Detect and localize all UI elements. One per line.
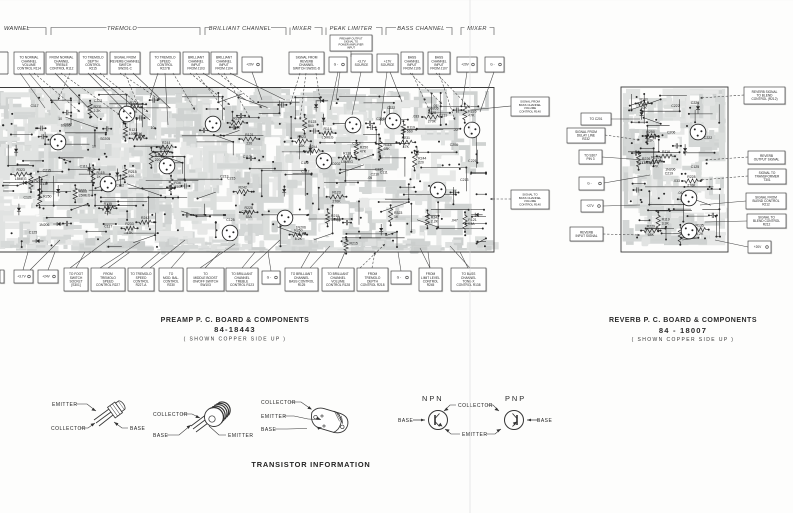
svg-text:C125: C125 [691,165,699,169]
svg-text:EMITTER: EMITTER [261,414,286,420]
svg-text:BASS CHANNEL: BASS CHANNEL [397,26,444,32]
svg-text:2.2K: 2.2K [431,219,439,223]
svg-text:TREMOLO: TREMOLO [107,26,137,32]
svg-text:C112: C112 [301,170,309,174]
svg-text:270K: 270K [332,199,341,203]
svg-text:2.2K: 2.2K [94,109,102,113]
svg-text:10: 10 [380,118,384,122]
svg-text:COLLECTOR: COLLECTOR [261,400,296,406]
svg-text:68K: 68K [384,147,391,151]
svg-text:+20V: +20V [461,63,469,67]
svg-text:C222: C222 [78,189,86,193]
svg-text:220: 220 [418,161,424,165]
svg-text:560: 560 [407,129,413,133]
svg-text:.05: .05 [367,176,372,180]
svg-text:FROM J103: FROM J103 [187,67,204,71]
svg-text:R227B: R227B [160,67,170,71]
svg-text:BASE: BASE [537,418,553,424]
svg-text:( SHOWN COPPER SIDE UP ): ( SHOWN COPPER SIDE UP ) [632,337,735,343]
svg-text:C112: C112 [116,184,124,188]
svg-text:BASE: BASE [130,426,146,432]
svg-text:R242: R242 [239,186,247,190]
svg-text:COLLECTOR: COLLECTOR [153,412,188,418]
svg-text:8.2K: 8.2K [696,232,704,236]
svg-text:53A: 53A [468,222,475,226]
svg-text:SOURCE: SOURCE [381,63,395,67]
svg-text:10: 10 [58,117,62,121]
svg-text:10: 10 [92,145,96,149]
svg-text:R125: R125 [298,283,306,287]
svg-text:G -: G - [490,63,494,67]
svg-text:L5MEG: L5MEG [79,194,91,198]
svg-text:C111: C111 [80,164,88,168]
svg-text:1K: 1K [97,175,102,179]
svg-text:BASE: BASE [153,433,169,439]
svg-text:WANNEL: WANNEL [4,26,30,32]
svg-text:G -: G - [267,276,271,280]
svg-text:560: 560 [308,124,314,128]
svg-text:10: 10 [151,126,155,130]
svg-text:47K: 47K [403,145,410,149]
svg-text:OUTPUT SIGNAL: OUTPUT SIGNAL [754,157,780,161]
svg-text:100: 100 [128,174,134,178]
svg-text:L5MEG: L5MEG [322,136,334,140]
svg-text:T301: T301 [763,178,770,182]
svg-text:R228: R228 [428,111,436,115]
svg-text:C117: C117 [637,161,645,165]
svg-text:53A: 53A [246,215,253,219]
svg-text:33K: 33K [299,144,306,148]
svg-text:47K: 47K [360,150,367,154]
svg-text:C206: C206 [241,210,249,214]
svg-text:R230: R230 [167,283,175,287]
svg-text:84 - 18007: 84 - 18007 [659,326,707,335]
svg-text:C117: C117 [31,104,39,108]
svg-text:R123: R123 [332,191,340,195]
svg-text:PREAMP P. C. BOARD & COMPO: PREAMP P. C. BOARD & COMPONENTS [161,317,310,324]
svg-text:1N206: 1N206 [39,223,49,227]
svg-text:CONTROL R123: CONTROL R123 [230,283,254,287]
svg-text:C117: C117 [104,225,112,229]
svg-text:CONTROL R140: CONTROL R140 [519,109,541,113]
svg-text:SWITCH SW201-D: SWITCH SW201-D [293,67,321,71]
svg-text:+20V: +20V [246,63,254,67]
svg-text:84-18443: 84-18443 [214,325,256,334]
svg-text:C125: C125 [226,218,234,222]
svg-text:C206: C206 [450,143,458,147]
svg-text:R245: R245 [427,283,435,287]
svg-text:3.3K: 3.3K [662,222,670,226]
svg-text:CONTROL R140: CONTROL R140 [519,202,541,206]
svg-text:C222: C222 [704,136,712,140]
svg-text:C226: C226 [375,168,383,172]
svg-text:TO C201: TO C201 [590,117,603,121]
svg-text:220: 220 [155,158,161,162]
svg-text:PIN 3: PIN 3 [587,157,595,161]
svg-text:( SHOWN COPPER SIDE UP ): ( SHOWN COPPER SIDE UP ) [184,337,287,343]
svg-text:C125: C125 [29,230,37,234]
svg-text:BRILLIANT CHANNEL: BRILLIANT CHANNEL [209,26,272,32]
svg-text:CONTROL R114: CONTROL R114 [17,67,41,71]
svg-text:+20V: +20V [754,245,762,249]
svg-text:220: 220 [246,142,252,146]
svg-text:C206: C206 [655,160,663,164]
svg-text:C222: C222 [387,106,395,110]
svg-text:R250: R250 [43,194,51,198]
svg-text:C222: C222 [671,104,679,108]
svg-text:+27V: +27V [586,204,594,208]
svg-text:NPN: NPN [422,394,444,403]
svg-text:R242: R242 [141,216,149,220]
svg-text:R323: R323 [17,168,25,172]
svg-text:47K: 47K [652,164,659,168]
svg-text:47K: 47K [126,231,133,235]
svg-text:FROM J104: FROM J104 [215,67,232,71]
svg-text:COLLECTOR: COLLECTOR [51,426,86,432]
svg-text:PNP: PNP [505,394,526,403]
svg-text:R215: R215 [350,241,358,245]
svg-text:C213: C213 [460,178,468,182]
svg-text:MIXER: MIXER [292,26,311,32]
svg-text:SOURCE: SOURCE [355,63,369,67]
svg-text:PEAK LIMITER: PEAK LIMITER [330,26,373,32]
svg-text:C206: C206 [667,131,675,135]
svg-text:CONTROL (R212): CONTROL (R212) [751,97,777,101]
svg-text:1K: 1K [394,215,399,219]
svg-text:R118: R118 [343,151,351,155]
svg-text:C121: C121 [24,196,32,200]
svg-text:R244: R244 [162,141,170,145]
svg-text:C226: C226 [468,159,476,163]
svg-text:R233: R233 [125,222,133,226]
svg-text:R227-A: R227-A [136,283,148,287]
svg-text:L5MEG: L5MEG [15,177,27,181]
svg-text:C219: C219 [665,171,673,175]
svg-text:33K: 33K [647,139,654,143]
svg-text:SW201-C: SW201-C [118,67,133,71]
svg-text:G -: G - [587,182,591,186]
svg-text:S0205: S0205 [100,137,110,141]
svg-text:COLLECTOR: COLLECTOR [458,403,493,409]
svg-text:CONTROL R218: CONTROL R218 [361,283,385,287]
svg-text:1MEG: 1MEG [331,218,341,222]
svg-text:8.2K: 8.2K [295,237,303,241]
svg-text:.047: .047 [451,219,458,223]
svg-text:68K: 68K [648,233,655,237]
svg-text:R228: R228 [687,175,695,179]
svg-text:R135: R135 [696,223,704,227]
svg-text:C112: C112 [40,182,48,186]
svg-text:FROM J106: FROM J106 [403,67,420,71]
svg-text:1N206: 1N206 [665,168,675,172]
svg-text:CONTROL R227: CONTROL R227 [96,283,120,287]
svg-text:REVERB P. C. BOARD & COMPO: REVERB P. C. BOARD & COMPONENTS [609,317,757,324]
svg-text:C219: C219 [352,142,360,146]
svg-text:BASE: BASE [398,418,414,424]
svg-text:CONTROL R128: CONTROL R128 [326,283,350,287]
svg-text:INPUT: INPUT [347,46,355,50]
svg-text:FROM J107: FROM J107 [430,67,447,71]
svg-text:G -: G - [397,276,401,280]
svg-text:R212: R212 [763,223,771,227]
svg-text:C222: C222 [64,123,72,127]
svg-text:R232: R232 [582,137,590,141]
svg-text:R116: R116 [662,150,670,154]
svg-text:1N206: 1N206 [296,226,306,230]
svg-text:C219: C219 [439,114,447,118]
svg-text:EMITTER: EMITTER [462,432,487,438]
svg-text:CONTROL R112: CONTROL R112 [50,67,74,71]
svg-text:.033: .033 [412,115,419,119]
svg-text:.22: .22 [453,128,458,132]
svg-text:C213: C213 [220,174,228,178]
svg-text:.033: .033 [673,179,680,183]
svg-text:R212: R212 [762,203,770,207]
svg-text:+24V: +24V [42,275,50,279]
svg-text:R229: R229 [647,224,655,228]
svg-text:R250: R250 [646,130,654,134]
svg-text:L5MEG: L5MEG [341,160,353,164]
svg-text:C215: C215 [43,169,51,173]
svg-text:SW103: SW103 [200,283,211,287]
svg-text:G -: G - [334,63,338,67]
svg-text:R215: R215 [89,67,97,71]
svg-text:[S301]: [S301] [71,283,80,287]
svg-text:TRANSISTOR INFORMATION: TRANSISTOR INFORMATION [251,460,370,469]
svg-text:R130: R130 [640,97,648,101]
svg-text:C112: C112 [301,161,309,165]
svg-text:270K: 270K [687,184,696,188]
svg-text:CONTROL R138: CONTROL R138 [457,283,481,287]
svg-text:EMITTER: EMITTER [52,402,77,408]
svg-text:270K: 270K [428,120,437,124]
svg-text:R116: R116 [324,127,332,131]
svg-text:R121: R121 [245,133,253,137]
svg-text:INPUT SIGNAL: INPUT SIGNAL [575,234,597,238]
svg-text:1K: 1K [164,150,169,154]
svg-text:BASE: BASE [261,427,277,433]
svg-text:47K: 47K [468,113,475,117]
svg-text:R323: R323 [298,135,306,139]
svg-text:+3.7V: +3.7V [17,275,26,279]
svg-text:EMITTER: EMITTER [228,433,253,439]
